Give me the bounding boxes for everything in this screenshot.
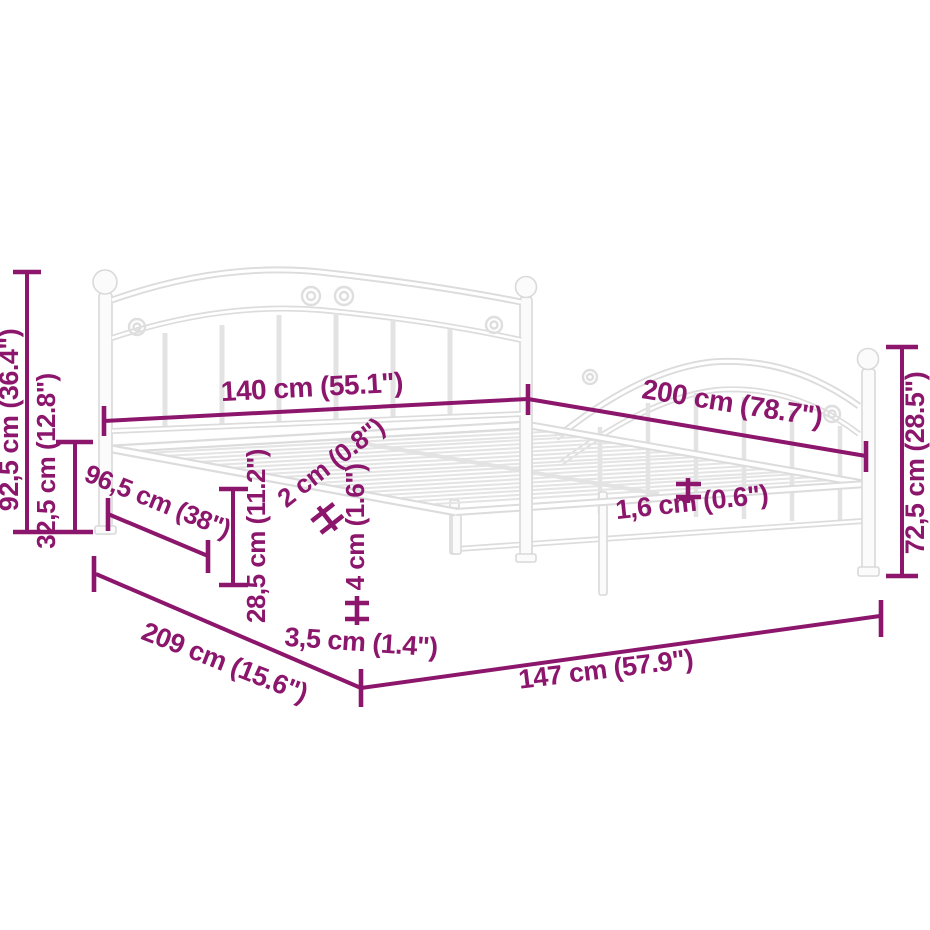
footboard-scroll-left (583, 370, 597, 384)
footboard-foot (858, 567, 879, 576)
dim-label-4: 4 cm (1.6") (340, 464, 370, 591)
footboard-finial (858, 349, 879, 370)
dimension-1-6: 1,6 cm (0.6") (614, 478, 770, 525)
dim-label-32-5: 32,5 cm (12.8") (31, 373, 61, 548)
dimension-147: 147 cm (57.9") (361, 600, 881, 695)
dimension-3-5: 3,5 cm (1.4") (284, 622, 439, 663)
dim-label-147: 147 cm (57.9") (517, 644, 695, 695)
dimension-4: 4 cm (1.6") (340, 464, 370, 625)
headboard-right-foot (516, 554, 536, 562)
dim-label-28-5: 28,5 cm (11.2") (241, 449, 271, 623)
headboard-center-scrolls (302, 287, 353, 305)
dim-label-92-5: 92,5 cm (36.4") (0, 329, 24, 511)
headboard-left-finial (93, 270, 117, 294)
bed-dimension-diagram: 92,5 cm (36.4") 32,5 cm (12.8") 140 cm (… (0, 0, 930, 930)
bed-frame (93, 270, 879, 595)
dim-label-1-6: 1,6 cm (0.6") (614, 479, 770, 525)
product-dimension-image: 92,5 cm (36.4") 32,5 cm (12.8") 140 cm (… (0, 0, 930, 930)
center-leg (599, 492, 607, 595)
headboard-left-foot (95, 526, 116, 534)
dim-label-140: 140 cm (55.1") (220, 367, 404, 407)
dimension-footboard-height: 72,5 cm (28.5") (886, 347, 930, 576)
dim-label-72-5: 72,5 cm (28.5") (900, 372, 930, 554)
dim-label-3-5: 3,5 cm (1.4") (284, 622, 439, 663)
headboard-right-finial (516, 277, 537, 298)
headboard-right-post (520, 297, 532, 555)
